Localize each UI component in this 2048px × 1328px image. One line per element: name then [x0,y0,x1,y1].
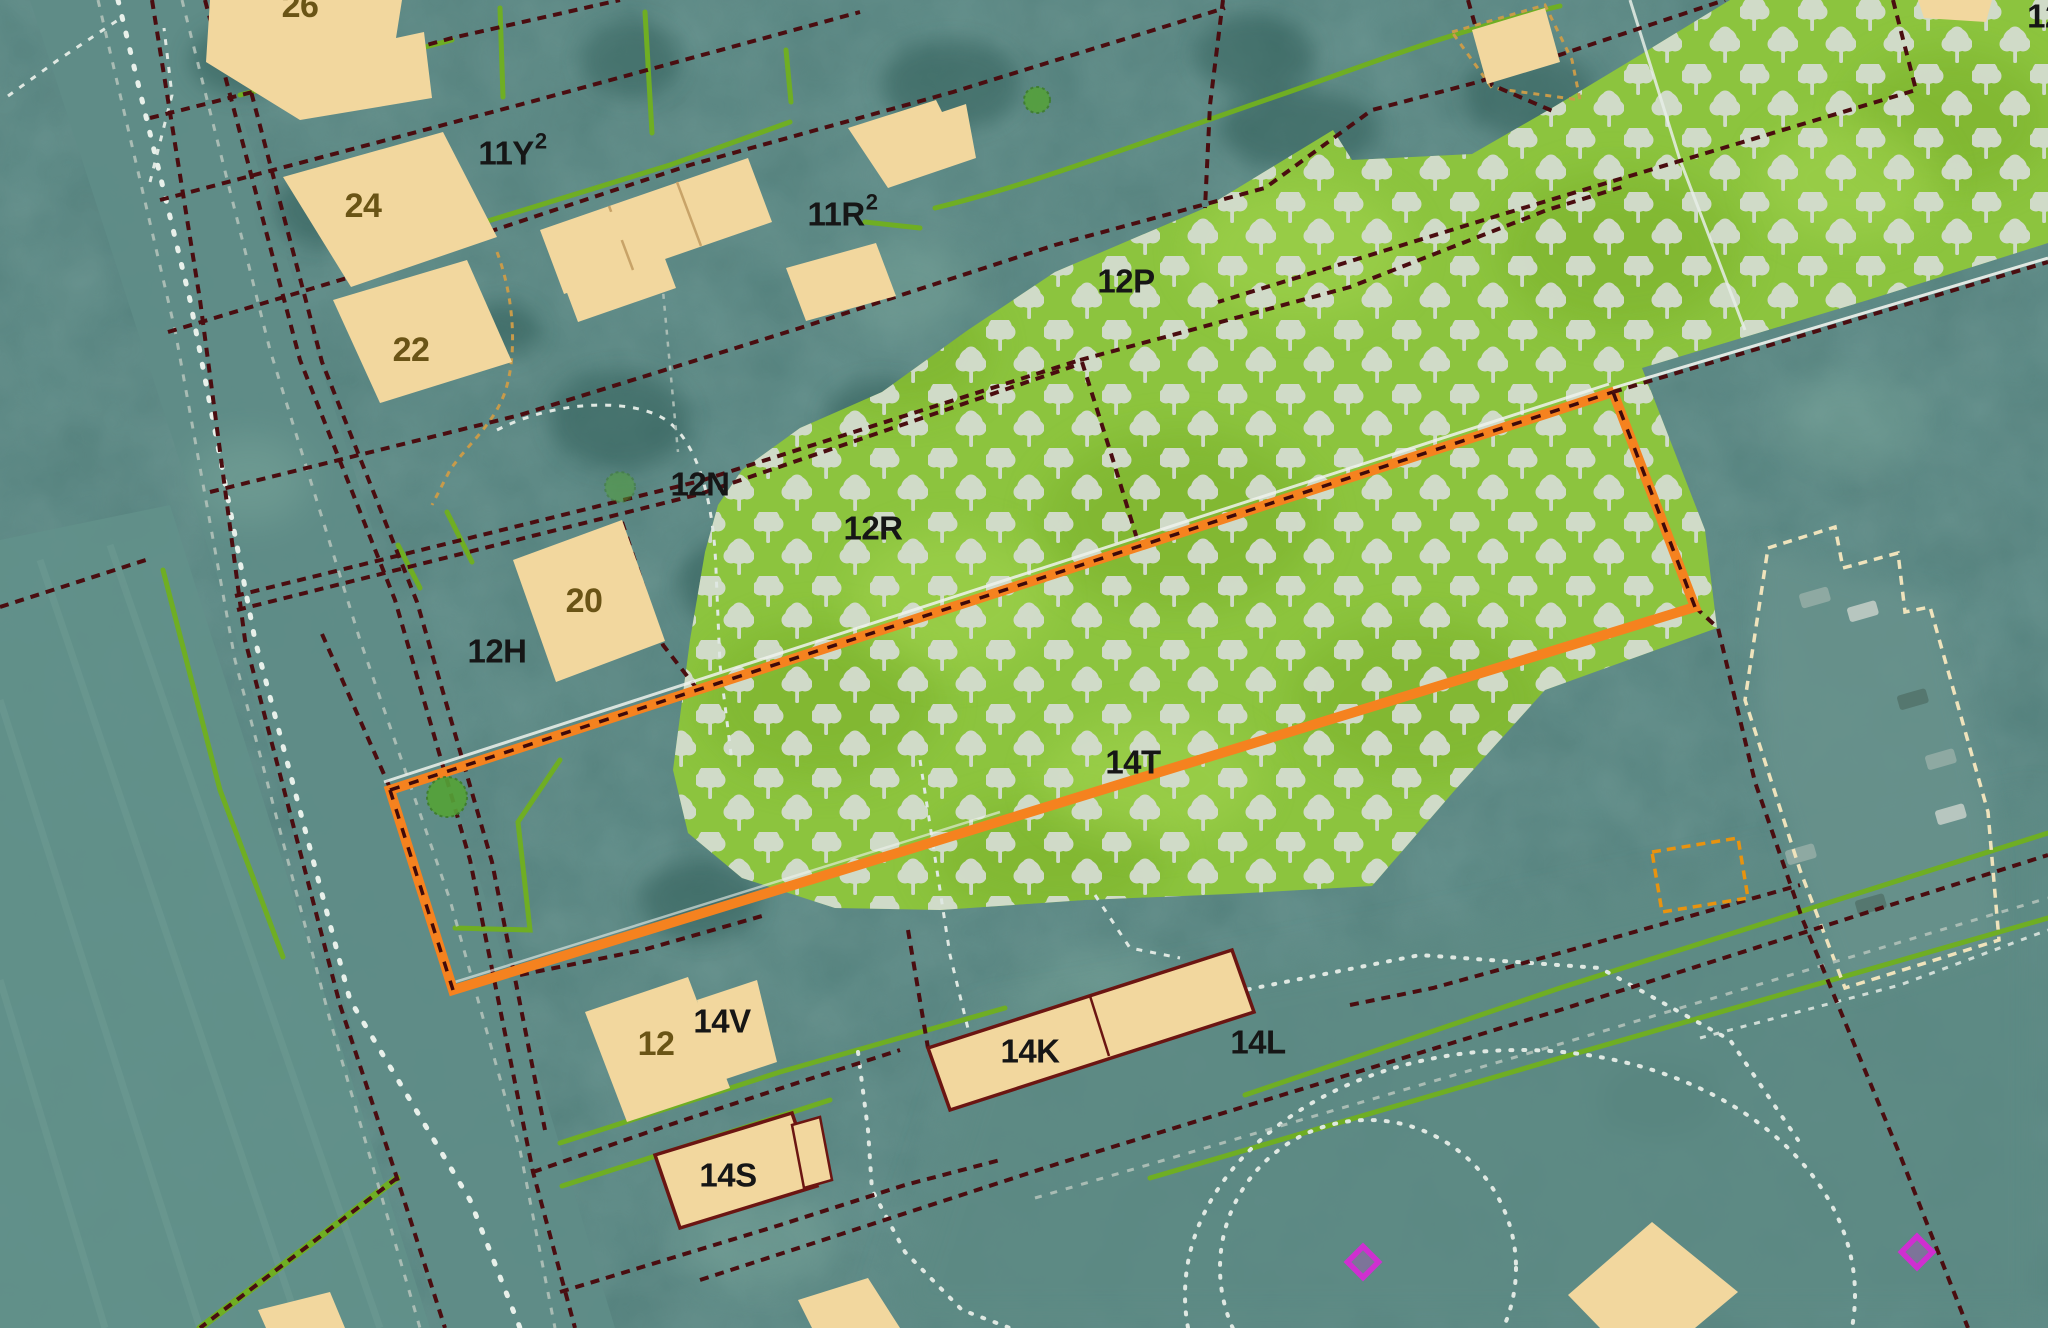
green-tree-symbol [605,472,635,502]
green-tree-symbol [427,777,467,817]
map-canvas[interactable] [0,0,2048,1328]
cadastral-map-viewport[interactable]: 262411Y22211R212P12N12R2012H14T1214V14K1… [0,0,2048,1328]
green-tree-symbol [1024,87,1050,113]
